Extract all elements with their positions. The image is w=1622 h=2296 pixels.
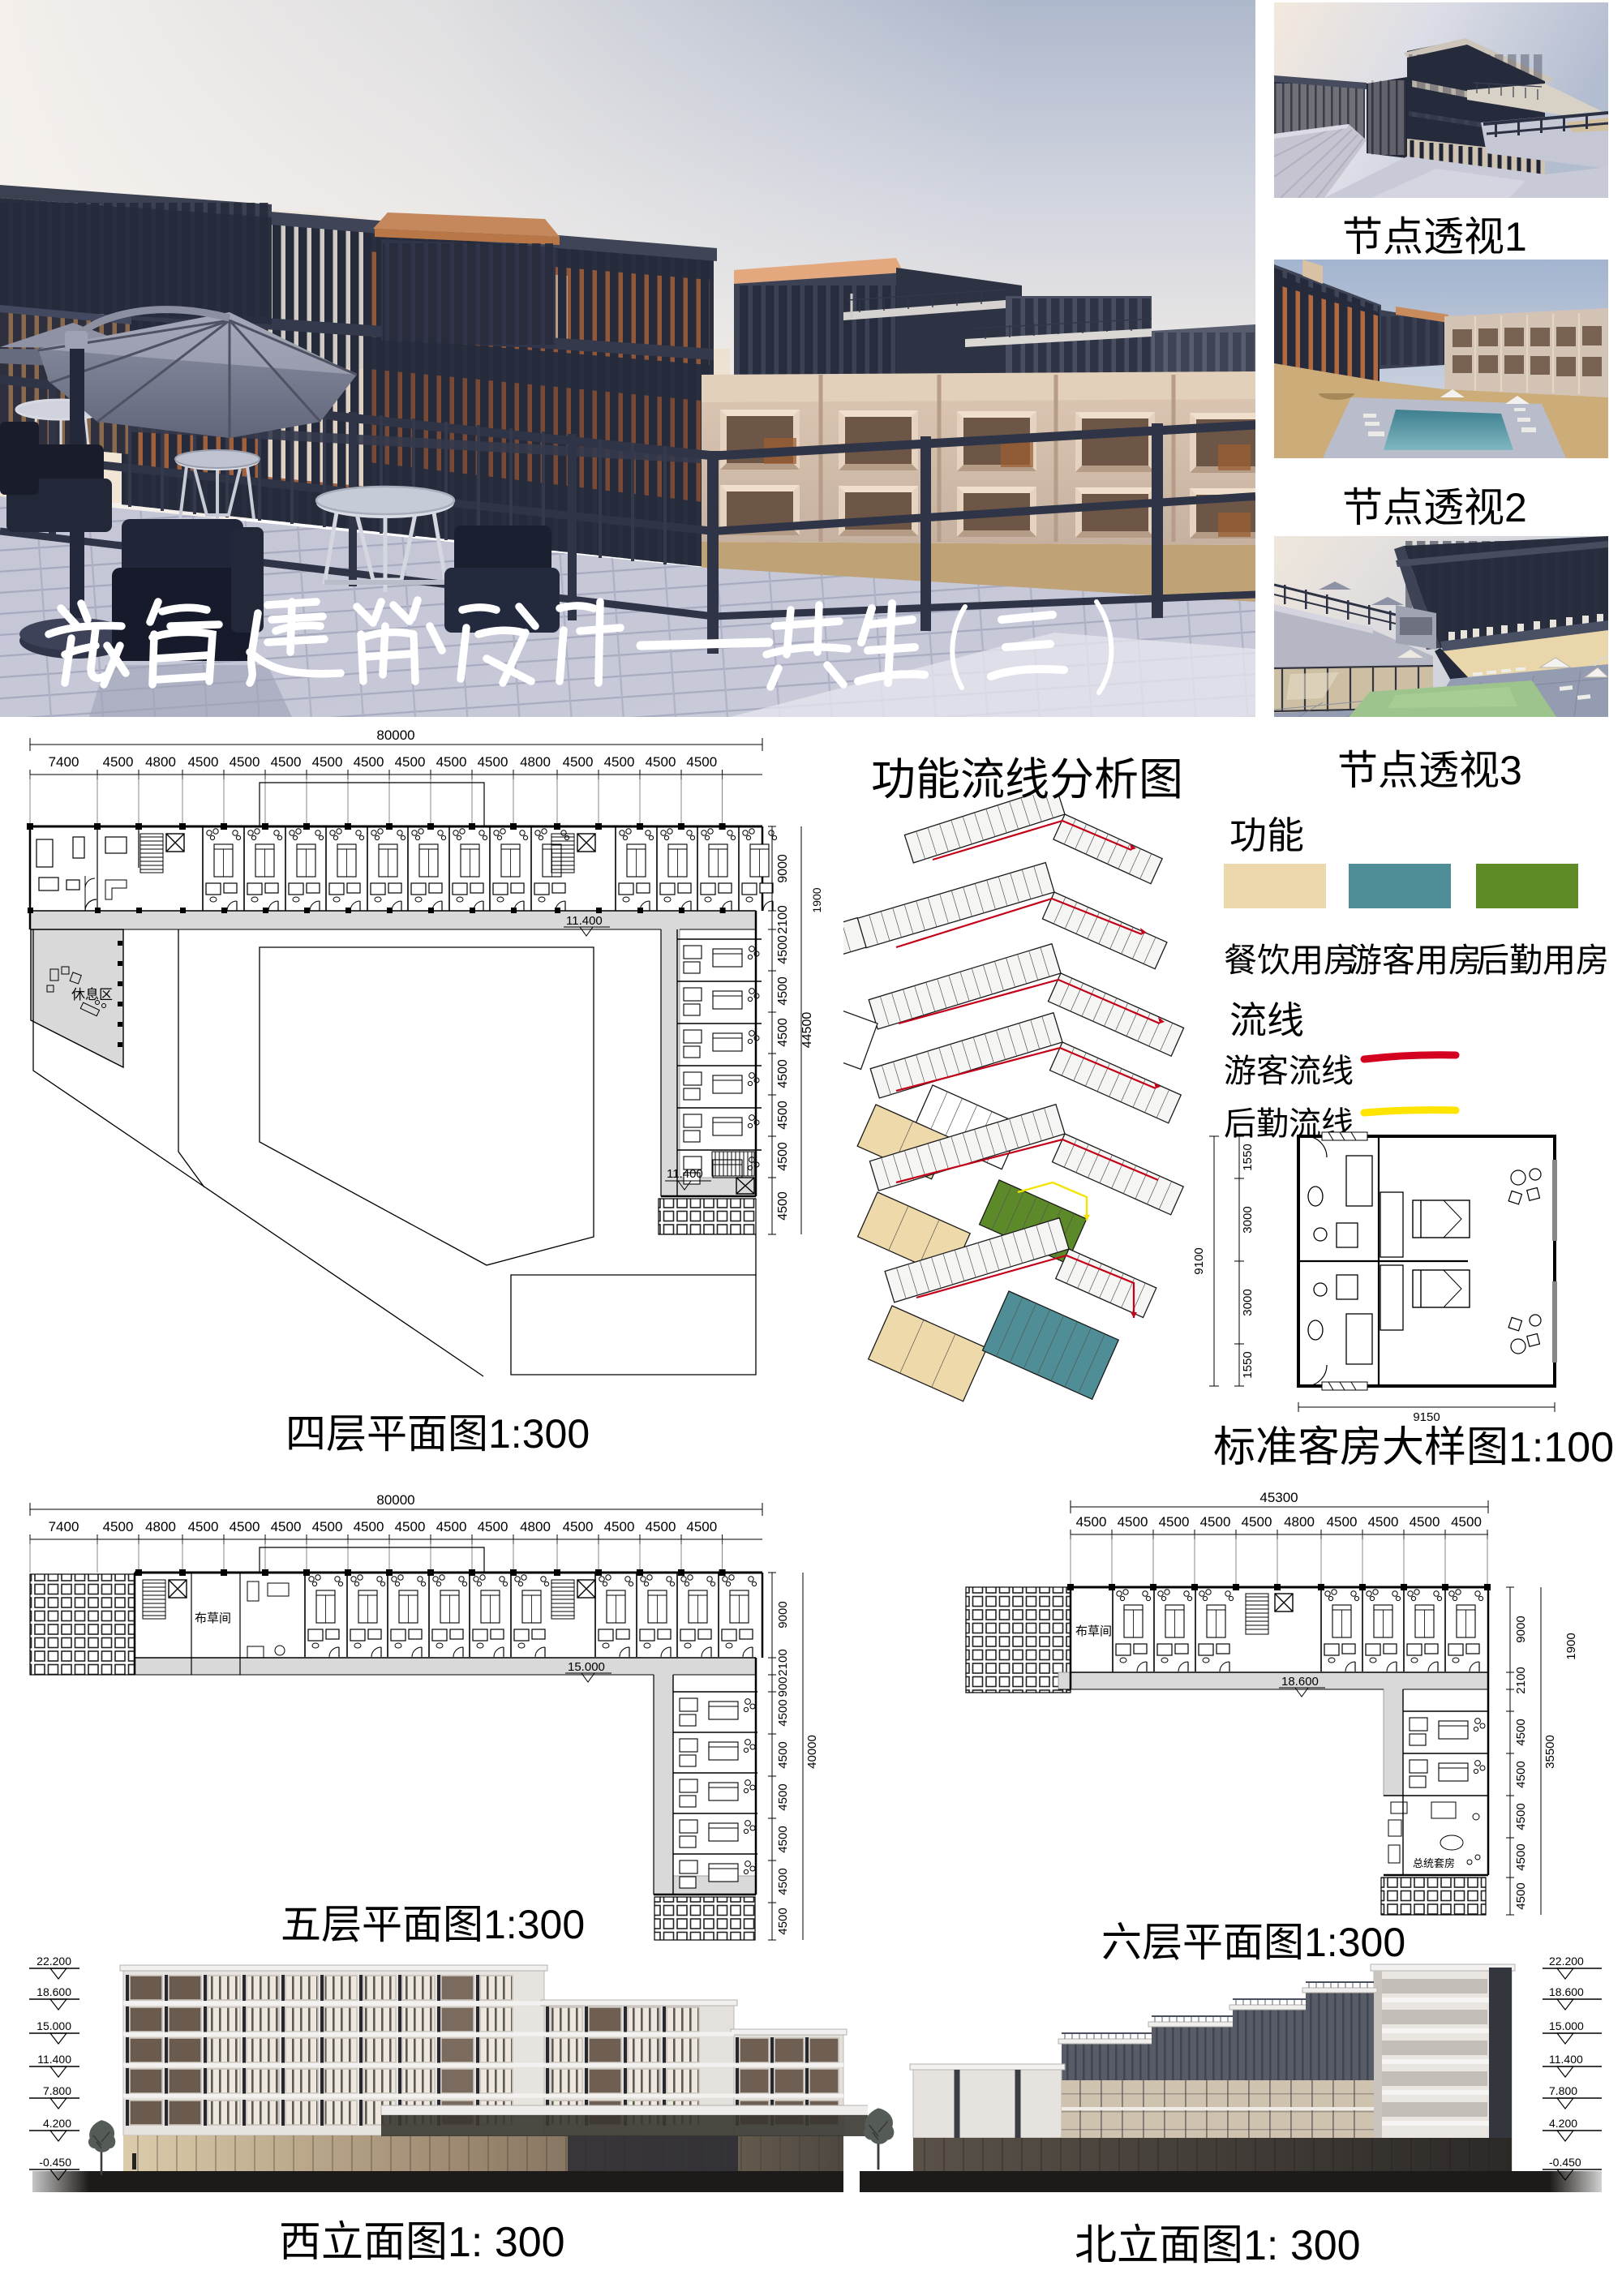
svg-text:4.200: 4.200 <box>1549 2117 1577 2130</box>
svg-text:4500: 4500 <box>776 1868 790 1895</box>
svg-text:4500: 4500 <box>312 754 343 770</box>
svg-text:4800: 4800 <box>1284 1514 1315 1530</box>
svg-text:4500: 4500 <box>103 754 134 770</box>
svg-text:4500: 4500 <box>776 1101 790 1130</box>
svg-text:18.600: 18.600 <box>1281 1675 1319 1689</box>
svg-text:4500: 4500 <box>563 754 594 770</box>
svg-text:4500: 4500 <box>271 754 302 770</box>
svg-text:布草间: 布草间 <box>195 1611 231 1625</box>
svg-text:4500: 4500 <box>271 1519 302 1534</box>
svg-text:4500: 4500 <box>478 754 508 770</box>
svg-text:7400: 7400 <box>49 754 79 770</box>
svg-text:7400: 7400 <box>49 1519 79 1534</box>
svg-text:4500: 4500 <box>1368 1514 1399 1530</box>
svg-text:4500: 4500 <box>436 754 467 770</box>
svg-text:4500: 4500 <box>188 1519 219 1534</box>
svg-text:4500: 4500 <box>1514 1803 1528 1830</box>
svg-text:4500: 4500 <box>188 754 219 770</box>
svg-text:4.200: 4.200 <box>43 2117 71 2130</box>
svg-text:4500: 4500 <box>1159 1514 1190 1530</box>
svg-text:3000: 3000 <box>1241 1289 1255 1315</box>
svg-text:4500: 4500 <box>478 1519 508 1534</box>
svg-text:4500: 4500 <box>776 1142 790 1171</box>
svg-text:7.800: 7.800 <box>43 2084 71 2097</box>
svg-text:18.600: 18.600 <box>1549 1985 1584 1998</box>
svg-text:4500: 4500 <box>604 1519 635 1534</box>
svg-text:11.400: 11.400 <box>37 2053 71 2066</box>
svg-text:900: 900 <box>776 1676 790 1697</box>
svg-text:35500: 35500 <box>1543 1735 1557 1769</box>
svg-text:4500: 4500 <box>686 754 717 770</box>
svg-text:4500: 4500 <box>436 1519 467 1534</box>
svg-text:15.000: 15.000 <box>568 1660 605 1674</box>
svg-text:4500: 4500 <box>646 754 676 770</box>
svg-text:四层平面图1:300: 四层平面图1:300 <box>285 1411 590 1457</box>
svg-text:4800: 4800 <box>145 1519 176 1534</box>
svg-text:4500: 4500 <box>776 1191 790 1221</box>
svg-text:4500: 4500 <box>776 976 790 1006</box>
svg-text:18.600: 18.600 <box>36 1985 71 1998</box>
svg-text:45300: 45300 <box>1259 1490 1298 1505</box>
svg-text:4500: 4500 <box>646 1519 676 1534</box>
svg-text:7.800: 7.800 <box>1549 2084 1577 2097</box>
svg-text:4800: 4800 <box>145 754 176 770</box>
svg-text:1550: 1550 <box>1241 1351 1255 1378</box>
svg-text:22.200: 22.200 <box>36 1955 71 1968</box>
svg-text:4500: 4500 <box>1118 1514 1148 1530</box>
svg-text:-0.450: -0.450 <box>1549 2156 1581 2169</box>
svg-text:布草间: 布草间 <box>1075 1624 1112 1638</box>
svg-text:4500: 4500 <box>1514 1882 1528 1909</box>
svg-text:4500: 4500 <box>230 754 260 770</box>
svg-text:2100: 2100 <box>1514 1667 1528 1693</box>
svg-text:4500: 4500 <box>776 1826 790 1852</box>
svg-text:80000: 80000 <box>376 1492 414 1508</box>
svg-text:1550: 1550 <box>1241 1144 1255 1170</box>
svg-text:80000: 80000 <box>376 728 414 743</box>
svg-text:1900: 1900 <box>810 887 823 912</box>
svg-text:9000: 9000 <box>1514 1616 1528 1642</box>
svg-text:11.400: 11.400 <box>1549 2053 1583 2066</box>
svg-text:44500: 44500 <box>800 1012 814 1049</box>
svg-text:22.200: 22.200 <box>1549 1955 1584 1968</box>
svg-text:4500: 4500 <box>1514 1843 1528 1870</box>
svg-text:4500: 4500 <box>312 1519 343 1534</box>
svg-text:4500: 4500 <box>103 1519 134 1534</box>
svg-text:休息区: 休息区 <box>71 987 113 1002</box>
svg-text:4500: 4500 <box>1242 1514 1272 1530</box>
svg-text:4500: 4500 <box>776 1018 790 1047</box>
svg-text:9100: 9100 <box>1192 1247 1206 1274</box>
svg-text:4500: 4500 <box>776 935 790 964</box>
svg-text:4500: 4500 <box>395 754 426 770</box>
svg-text:15.000: 15.000 <box>1549 2019 1584 2032</box>
svg-text:11.400: 11.400 <box>667 1167 703 1181</box>
svg-text:15.000: 15.000 <box>36 2019 71 2032</box>
svg-text:9000: 9000 <box>776 1601 790 1628</box>
svg-text:4500: 4500 <box>1514 1719 1528 1745</box>
svg-text:1900: 1900 <box>1564 1633 1578 1659</box>
svg-text:五层平面图1:300: 五层平面图1:300 <box>281 1902 585 1947</box>
svg-text:4500: 4500 <box>776 1908 790 1934</box>
svg-text:4800: 4800 <box>520 754 551 770</box>
svg-text:11.400: 11.400 <box>566 914 603 928</box>
svg-text:4500: 4500 <box>354 1519 384 1534</box>
svg-text:总统套房: 总统套房 <box>1413 1857 1455 1869</box>
svg-text:2100: 2100 <box>776 1649 790 1676</box>
svg-text:4500: 4500 <box>1514 1761 1528 1787</box>
svg-text:4500: 4500 <box>354 754 384 770</box>
svg-text:4500: 4500 <box>1200 1514 1231 1530</box>
svg-text:4500: 4500 <box>776 1699 790 1726</box>
svg-text:4800: 4800 <box>520 1519 551 1534</box>
svg-text:4500: 4500 <box>776 1059 790 1088</box>
svg-text:4500: 4500 <box>604 754 635 770</box>
svg-text:3000: 3000 <box>1241 1206 1255 1233</box>
svg-text:9000: 9000 <box>776 854 790 883</box>
svg-text:4500: 4500 <box>395 1519 426 1534</box>
svg-text:4500: 4500 <box>563 1519 594 1534</box>
svg-text:-0.450: -0.450 <box>39 2156 71 2169</box>
svg-text:4500: 4500 <box>776 1741 790 1768</box>
svg-text:4500: 4500 <box>1410 1514 1440 1530</box>
svg-text:4500: 4500 <box>686 1519 717 1534</box>
svg-text:4500: 4500 <box>776 1783 790 1810</box>
svg-text:4500: 4500 <box>1327 1514 1358 1530</box>
svg-text:4500: 4500 <box>1451 1514 1482 1530</box>
svg-text:2100: 2100 <box>776 905 790 934</box>
svg-text:4500: 4500 <box>230 1519 260 1534</box>
svg-text:4500: 4500 <box>1076 1514 1107 1530</box>
